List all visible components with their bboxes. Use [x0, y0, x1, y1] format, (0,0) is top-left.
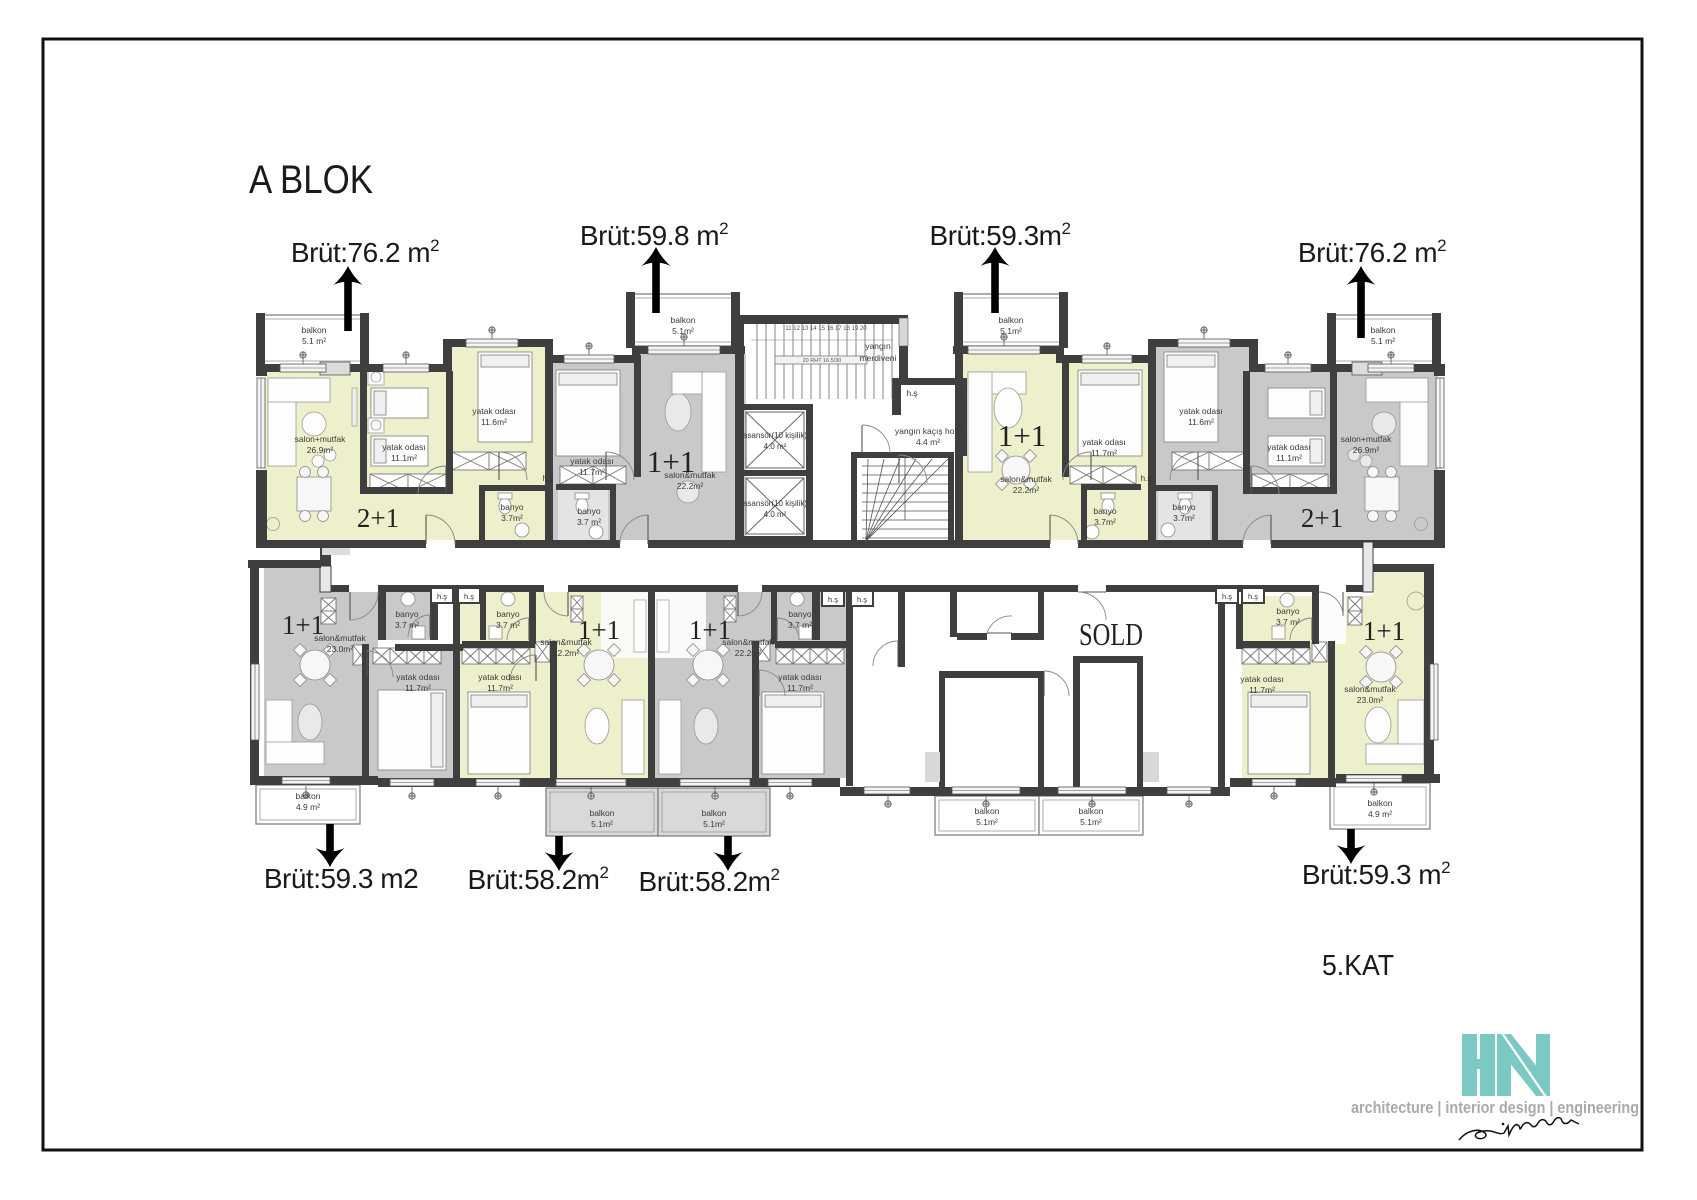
- svg-text:22.2m²: 22.2m²: [735, 648, 762, 658]
- svg-text:h.ş: h.ş: [1248, 592, 1258, 601]
- svg-text:salon&mutfak: salon&mutfak: [722, 637, 774, 647]
- svg-text:5.1 m²: 5.1 m²: [1371, 336, 1395, 346]
- svg-text:3.7 m²: 3.7 m²: [1276, 617, 1300, 627]
- svg-text:11.6m²: 11.6m²: [481, 417, 507, 427]
- svg-text:balkon: balkon: [701, 808, 726, 818]
- svg-text:11.7m²: 11.7m²: [405, 683, 431, 693]
- svg-text:3.7 m²: 3.7 m²: [788, 620, 812, 630]
- svg-text:h.ş: h.ş: [1141, 474, 1152, 483]
- svg-text:5.1m²: 5.1m²: [976, 817, 998, 827]
- svg-text:salon&mutfak: salon&mutfak: [540, 637, 592, 647]
- svg-text:h.ş: h.ş: [1222, 592, 1232, 601]
- svg-text:Brüt:76.2 m2: Brüt:76.2 m2: [1298, 236, 1446, 268]
- svg-text:merdiveni: merdiveni: [860, 353, 897, 363]
- svg-text:banyo: banyo: [1172, 502, 1195, 512]
- svg-text:yatak odası: yatak odası: [472, 406, 515, 416]
- svg-text:5.KAT: 5.KAT: [1322, 950, 1394, 982]
- svg-text:balkon: balkon: [998, 315, 1023, 325]
- svg-text:11.6m²: 11.6m²: [1188, 417, 1214, 427]
- svg-text:salon+mutfak: salon+mutfak: [1341, 434, 1393, 444]
- svg-text:salon&mutfak: salon&mutfak: [1344, 684, 1396, 694]
- svg-text:2+1: 2+1: [1301, 503, 1343, 533]
- svg-text:3.7m²: 3.7m²: [1094, 517, 1116, 527]
- svg-text:20 RHT 16.5/30: 20 RHT 16.5/30: [803, 358, 842, 364]
- svg-text:23.0m²: 23.0m²: [327, 644, 354, 654]
- svg-text:11.7m²: 11.7m²: [487, 683, 513, 693]
- svg-text:salon&mutfak: salon&mutfak: [314, 633, 366, 643]
- svg-text:5.1m²: 5.1m²: [1000, 326, 1022, 336]
- svg-text:yatak odası: yatak odası: [778, 672, 821, 682]
- svg-text:3.7 m²: 3.7 m²: [395, 620, 419, 630]
- svg-text:3.7 m²: 3.7 m²: [496, 620, 520, 630]
- svg-text:banyo: banyo: [1276, 606, 1299, 616]
- svg-text:5.1 m²: 5.1 m²: [302, 336, 326, 346]
- svg-text:3.7m²: 3.7m²: [501, 513, 523, 523]
- svg-text:yatak odası: yatak odası: [478, 672, 521, 682]
- svg-text:5.1m²: 5.1m²: [703, 819, 725, 829]
- svg-text:4.9 m²: 4.9 m²: [296, 802, 320, 812]
- svg-text:Brüt:58.2m2: Brüt:58.2m2: [468, 863, 609, 895]
- svg-text:Brüt:58.2m2: Brüt:58.2m2: [639, 865, 780, 897]
- svg-text:h.ş: h.ş: [906, 388, 917, 398]
- svg-text:yatak odası: yatak odası: [1240, 674, 1283, 684]
- svg-text:h.ş: h.ş: [464, 592, 474, 601]
- svg-text:11.7m²: 11.7m²: [1091, 448, 1117, 458]
- svg-text:1+1: 1+1: [1363, 616, 1405, 646]
- svg-text:5.1m²: 5.1m²: [1080, 817, 1102, 827]
- svg-text:asansör(10 kişilik): asansör(10 kişilik): [743, 431, 807, 440]
- svg-text:3.7 m²: 3.7 m²: [577, 517, 601, 527]
- svg-text:A BLOK: A BLOK: [249, 158, 373, 202]
- svg-text:balkon: balkon: [301, 325, 326, 335]
- svg-text:h.ş: h.ş: [543, 474, 554, 483]
- svg-text:11.7m²: 11.7m²: [1249, 685, 1275, 695]
- svg-text:architecture | interior desig: architecture | interior design | enginee…: [1351, 1099, 1639, 1117]
- svg-text:11.1m²: 11.1m²: [1276, 453, 1302, 463]
- svg-text:salon+mutfak: salon+mutfak: [295, 434, 347, 444]
- svg-text:h.ş: h.ş: [828, 595, 838, 604]
- svg-text:4.0 m²: 4.0 m²: [764, 510, 787, 519]
- svg-text:Brüt:59.3m2: Brüt:59.3m2: [930, 219, 1071, 251]
- svg-text:11.7m²: 11.7m²: [579, 467, 605, 477]
- svg-text:4.9 m²: 4.9 m²: [1368, 809, 1392, 819]
- svg-text:11.1m²: 11.1m²: [391, 453, 417, 463]
- svg-text:3.7m²: 3.7m²: [1173, 513, 1195, 523]
- svg-text:balkon: balkon: [670, 315, 695, 325]
- svg-text:yatak odası: yatak odası: [1179, 406, 1222, 416]
- svg-text:balkon: balkon: [1367, 798, 1392, 808]
- svg-text:yatak odası: yatak odası: [1082, 437, 1125, 447]
- svg-text:4.4 m²: 4.4 m²: [916, 437, 940, 447]
- svg-text:26.9m²: 26.9m²: [1353, 445, 1380, 455]
- svg-text:22.2m²: 22.2m²: [677, 481, 704, 491]
- svg-text:SOLD: SOLD: [1079, 616, 1143, 652]
- svg-text:balkon: balkon: [295, 791, 320, 801]
- svg-text:23.0m²: 23.0m²: [1357, 695, 1384, 705]
- svg-text:balkon: balkon: [1078, 806, 1103, 816]
- svg-text:Brüt:59.8 m2: Brüt:59.8 m2: [580, 219, 728, 251]
- svg-text:22.2m²: 22.2m²: [1013, 485, 1040, 495]
- svg-text:banyo: banyo: [577, 506, 600, 516]
- svg-text:4.0 m²: 4.0 m²: [764, 442, 787, 451]
- svg-text:h.ş: h.ş: [437, 592, 447, 601]
- svg-text:balkon: balkon: [589, 808, 614, 818]
- svg-text:salon&mutfak: salon&mutfak: [1000, 474, 1052, 484]
- svg-text:banyo: banyo: [496, 609, 519, 619]
- svg-text:yatak odası: yatak odası: [382, 442, 425, 452]
- svg-text:26.9m²: 26.9m²: [307, 445, 334, 455]
- svg-text:yatak odası: yatak odası: [570, 456, 613, 466]
- svg-text:11.7m²: 11.7m²: [787, 683, 813, 693]
- svg-text:Brüt:59.3 m2: Brüt:59.3 m2: [1302, 858, 1450, 890]
- svg-text:banyo: banyo: [788, 609, 811, 619]
- svg-text:balkon: balkon: [974, 806, 999, 816]
- svg-text:banyo: banyo: [395, 609, 418, 619]
- svg-text:1+1: 1+1: [647, 444, 695, 479]
- svg-text:5.1m²: 5.1m²: [591, 819, 613, 829]
- svg-text:asansör(10 kişilik): asansör(10 kişilik): [743, 499, 807, 508]
- svg-text:Brüt:59.3 m2: Brüt:59.3 m2: [264, 863, 418, 894]
- svg-text:h.ş: h.ş: [857, 595, 867, 604]
- svg-text:yangın: yangın: [865, 341, 891, 351]
- svg-text:2+1: 2+1: [357, 503, 399, 533]
- svg-text:11 12 13 14 15 16 17 18 19 20: 11 12 13 14 15 16 17 18 19 20: [785, 326, 867, 332]
- svg-text:yatak odası: yatak odası: [396, 672, 439, 682]
- svg-text:Brüt:76.2 m2: Brüt:76.2 m2: [291, 236, 439, 268]
- svg-text:banyo: banyo: [1093, 506, 1116, 516]
- svg-text:1+1: 1+1: [998, 418, 1046, 453]
- svg-text:22.2m²: 22.2m²: [553, 648, 580, 658]
- svg-text:yatak odası: yatak odası: [1267, 442, 1310, 452]
- svg-text:balkon: balkon: [1370, 325, 1395, 335]
- svg-text:banyo: banyo: [500, 502, 523, 512]
- svg-text:5.1m²: 5.1m²: [672, 326, 694, 336]
- svg-text:yangın kaçış holü: yangın kaçış holü: [895, 426, 961, 436]
